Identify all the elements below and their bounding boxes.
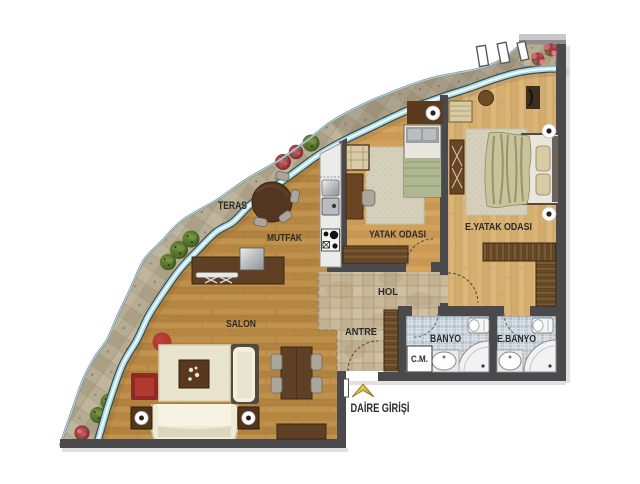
svg-text:HOL: HOL [378,286,399,298]
svg-text:YATAK ODASI: YATAK ODASI [369,229,426,241]
svg-text:SALON: SALON [226,318,256,330]
svg-text:C.M.: C.M. [411,354,428,364]
svg-text:ANTRE: ANTRE [345,326,377,338]
svg-text:E.BANYO: E.BANYO [497,333,536,345]
svg-text:BANYO: BANYO [430,333,461,345]
svg-text:MUTFAK: MUTFAK [267,232,302,244]
svg-text:DAİRE GİRİŞİ: DAİRE GİRİŞİ [351,402,410,415]
svg-text:TERAS: TERAS [218,200,247,212]
svg-text:E.YATAK ODASI: E.YATAK ODASI [465,221,532,233]
